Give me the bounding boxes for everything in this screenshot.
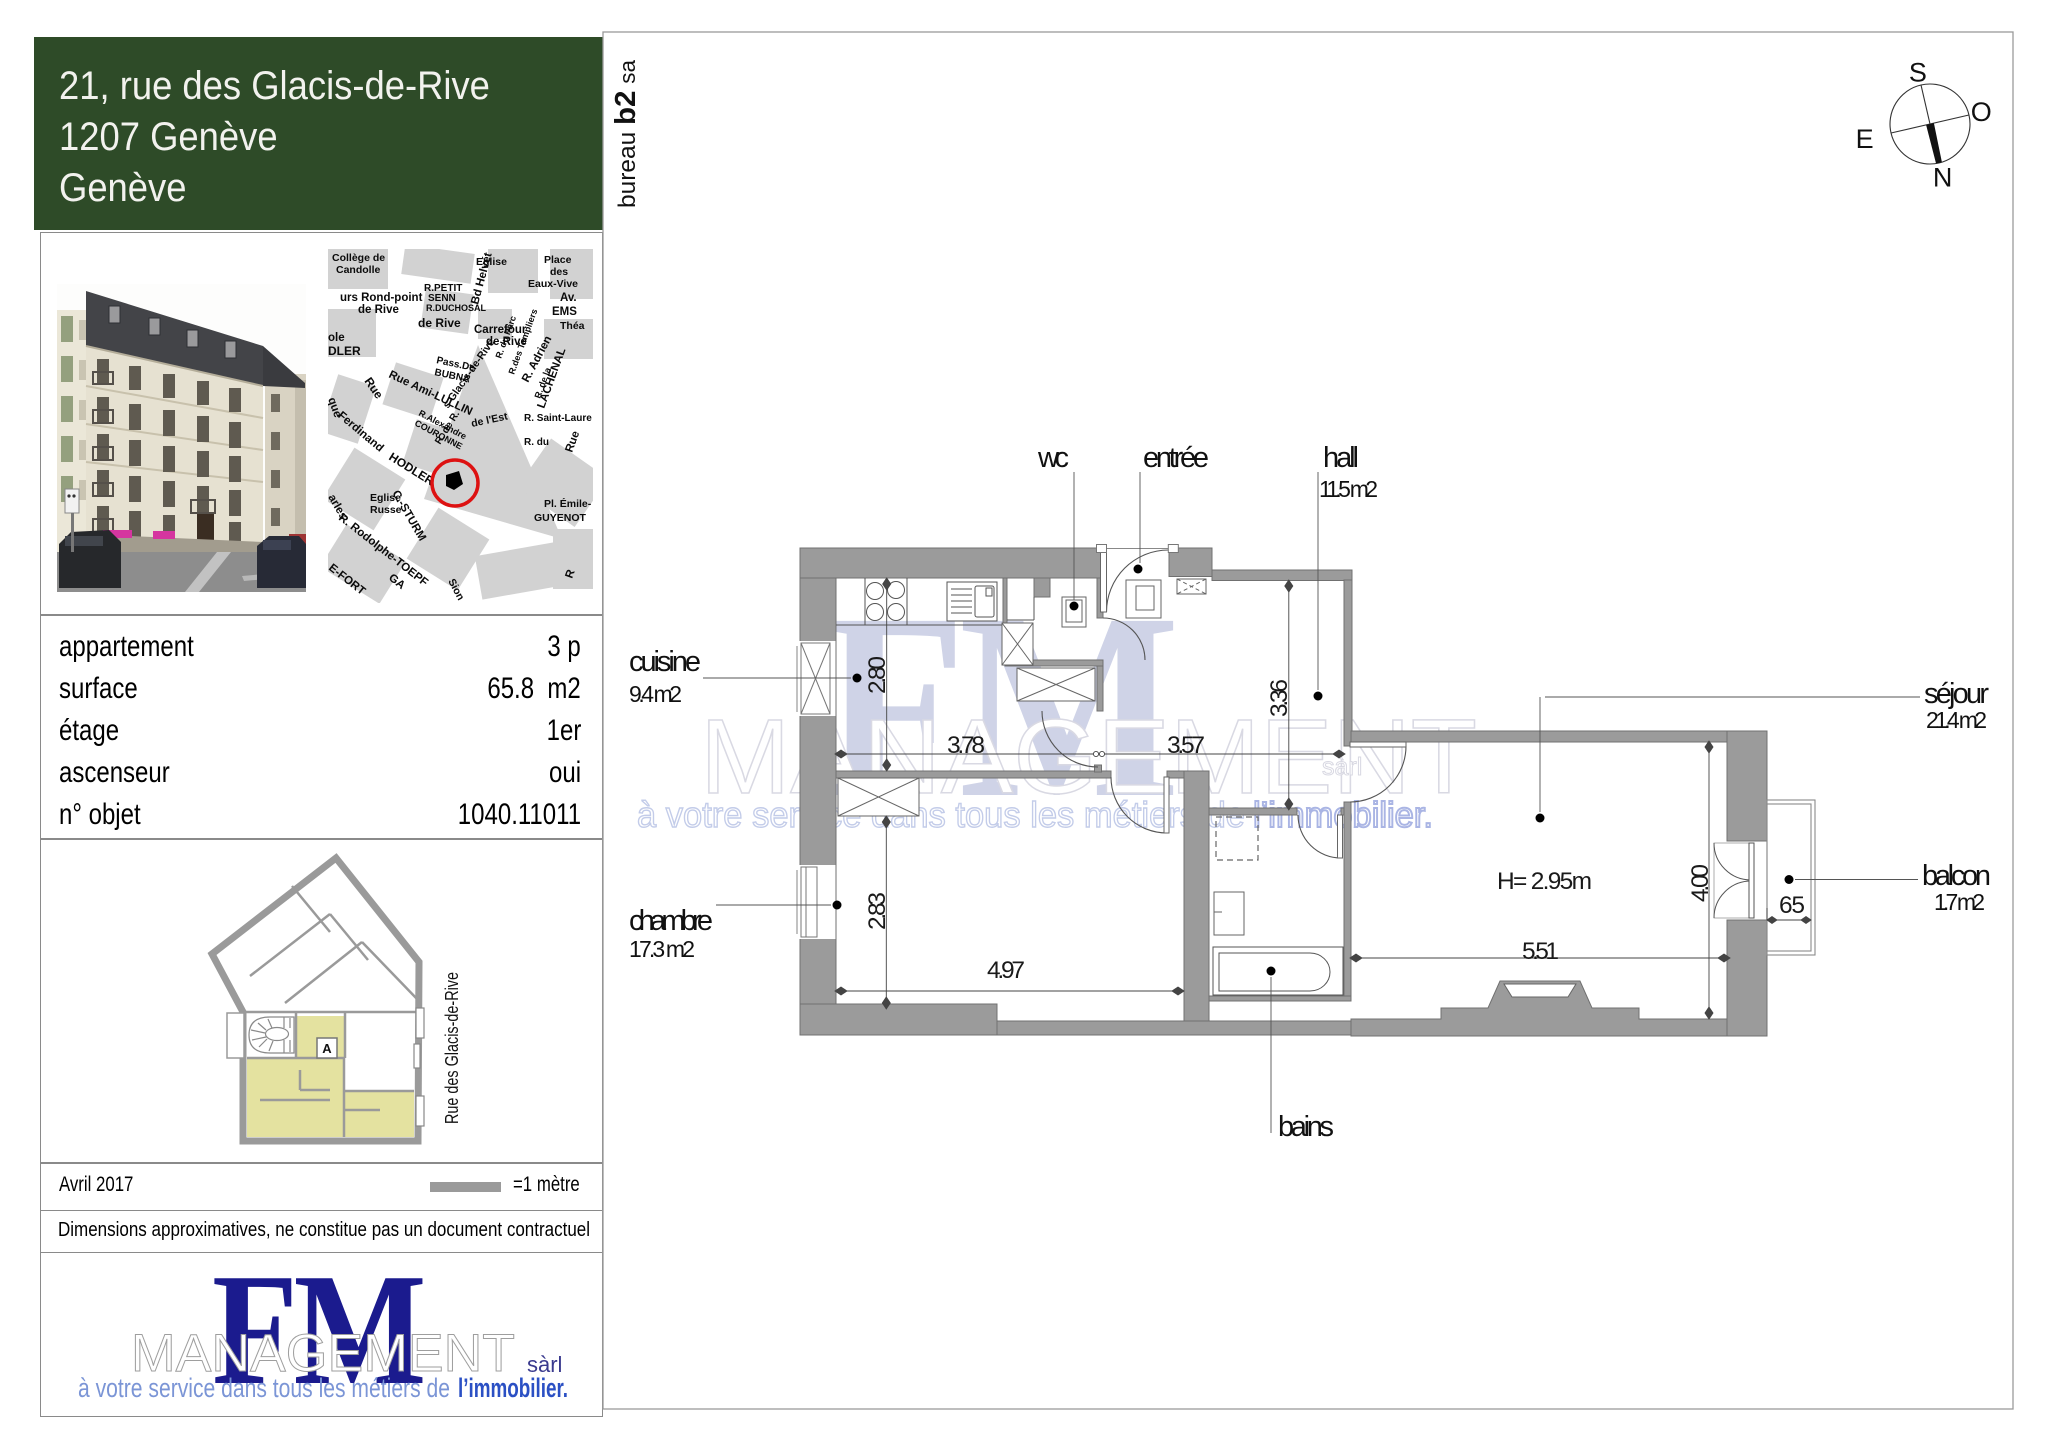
svg-text:sàrl: sàrl [1322,753,1362,781]
svg-text:11.5 m2: 11.5 m2 [1319,476,1378,502]
svg-text:3.36: 3.36 [1266,679,1293,717]
svg-text:9.4 m2: 9.4 m2 [629,681,682,707]
svg-text:chambre: chambre [629,905,713,937]
svg-text:O: O [1971,97,1992,127]
svg-text:H= 2.95m: H= 2.95m [1497,868,1592,895]
svg-text:wc: wc [1037,442,1069,474]
svg-text:21.4 m2: 21.4 m2 [1926,707,1987,733]
svg-text:S: S [1909,57,1927,87]
svg-text:2.83: 2.83 [864,892,891,930]
svg-text:3.78: 3.78 [947,732,985,759]
svg-text:balcon: balcon [1922,860,1991,892]
svg-text:N: N [1933,163,1953,193]
svg-text:2.80: 2.80 [864,656,891,694]
svg-text:séjour: séjour [1924,678,1989,710]
svg-text:bains: bains [1278,1111,1334,1143]
svg-text:4.00: 4.00 [1687,864,1714,902]
svg-text:5.51: 5.51 [1522,938,1559,965]
svg-text:entrée: entrée [1143,442,1209,474]
svg-text:17.3 m2: 17.3 m2 [629,936,695,962]
svg-text:cuisine: cuisine [629,646,701,678]
svg-text:à votre service dans tous les: à votre service dans tous les métiers de [637,794,1245,835]
svg-text:3.57: 3.57 [1167,732,1205,759]
svg-text:1.7 m2: 1.7 m2 [1934,889,1985,915]
svg-text:hall: hall [1323,442,1359,474]
svg-text:E: E [1856,124,1874,154]
svg-text:65: 65 [1779,892,1805,919]
svg-text:4.97: 4.97 [987,957,1025,984]
